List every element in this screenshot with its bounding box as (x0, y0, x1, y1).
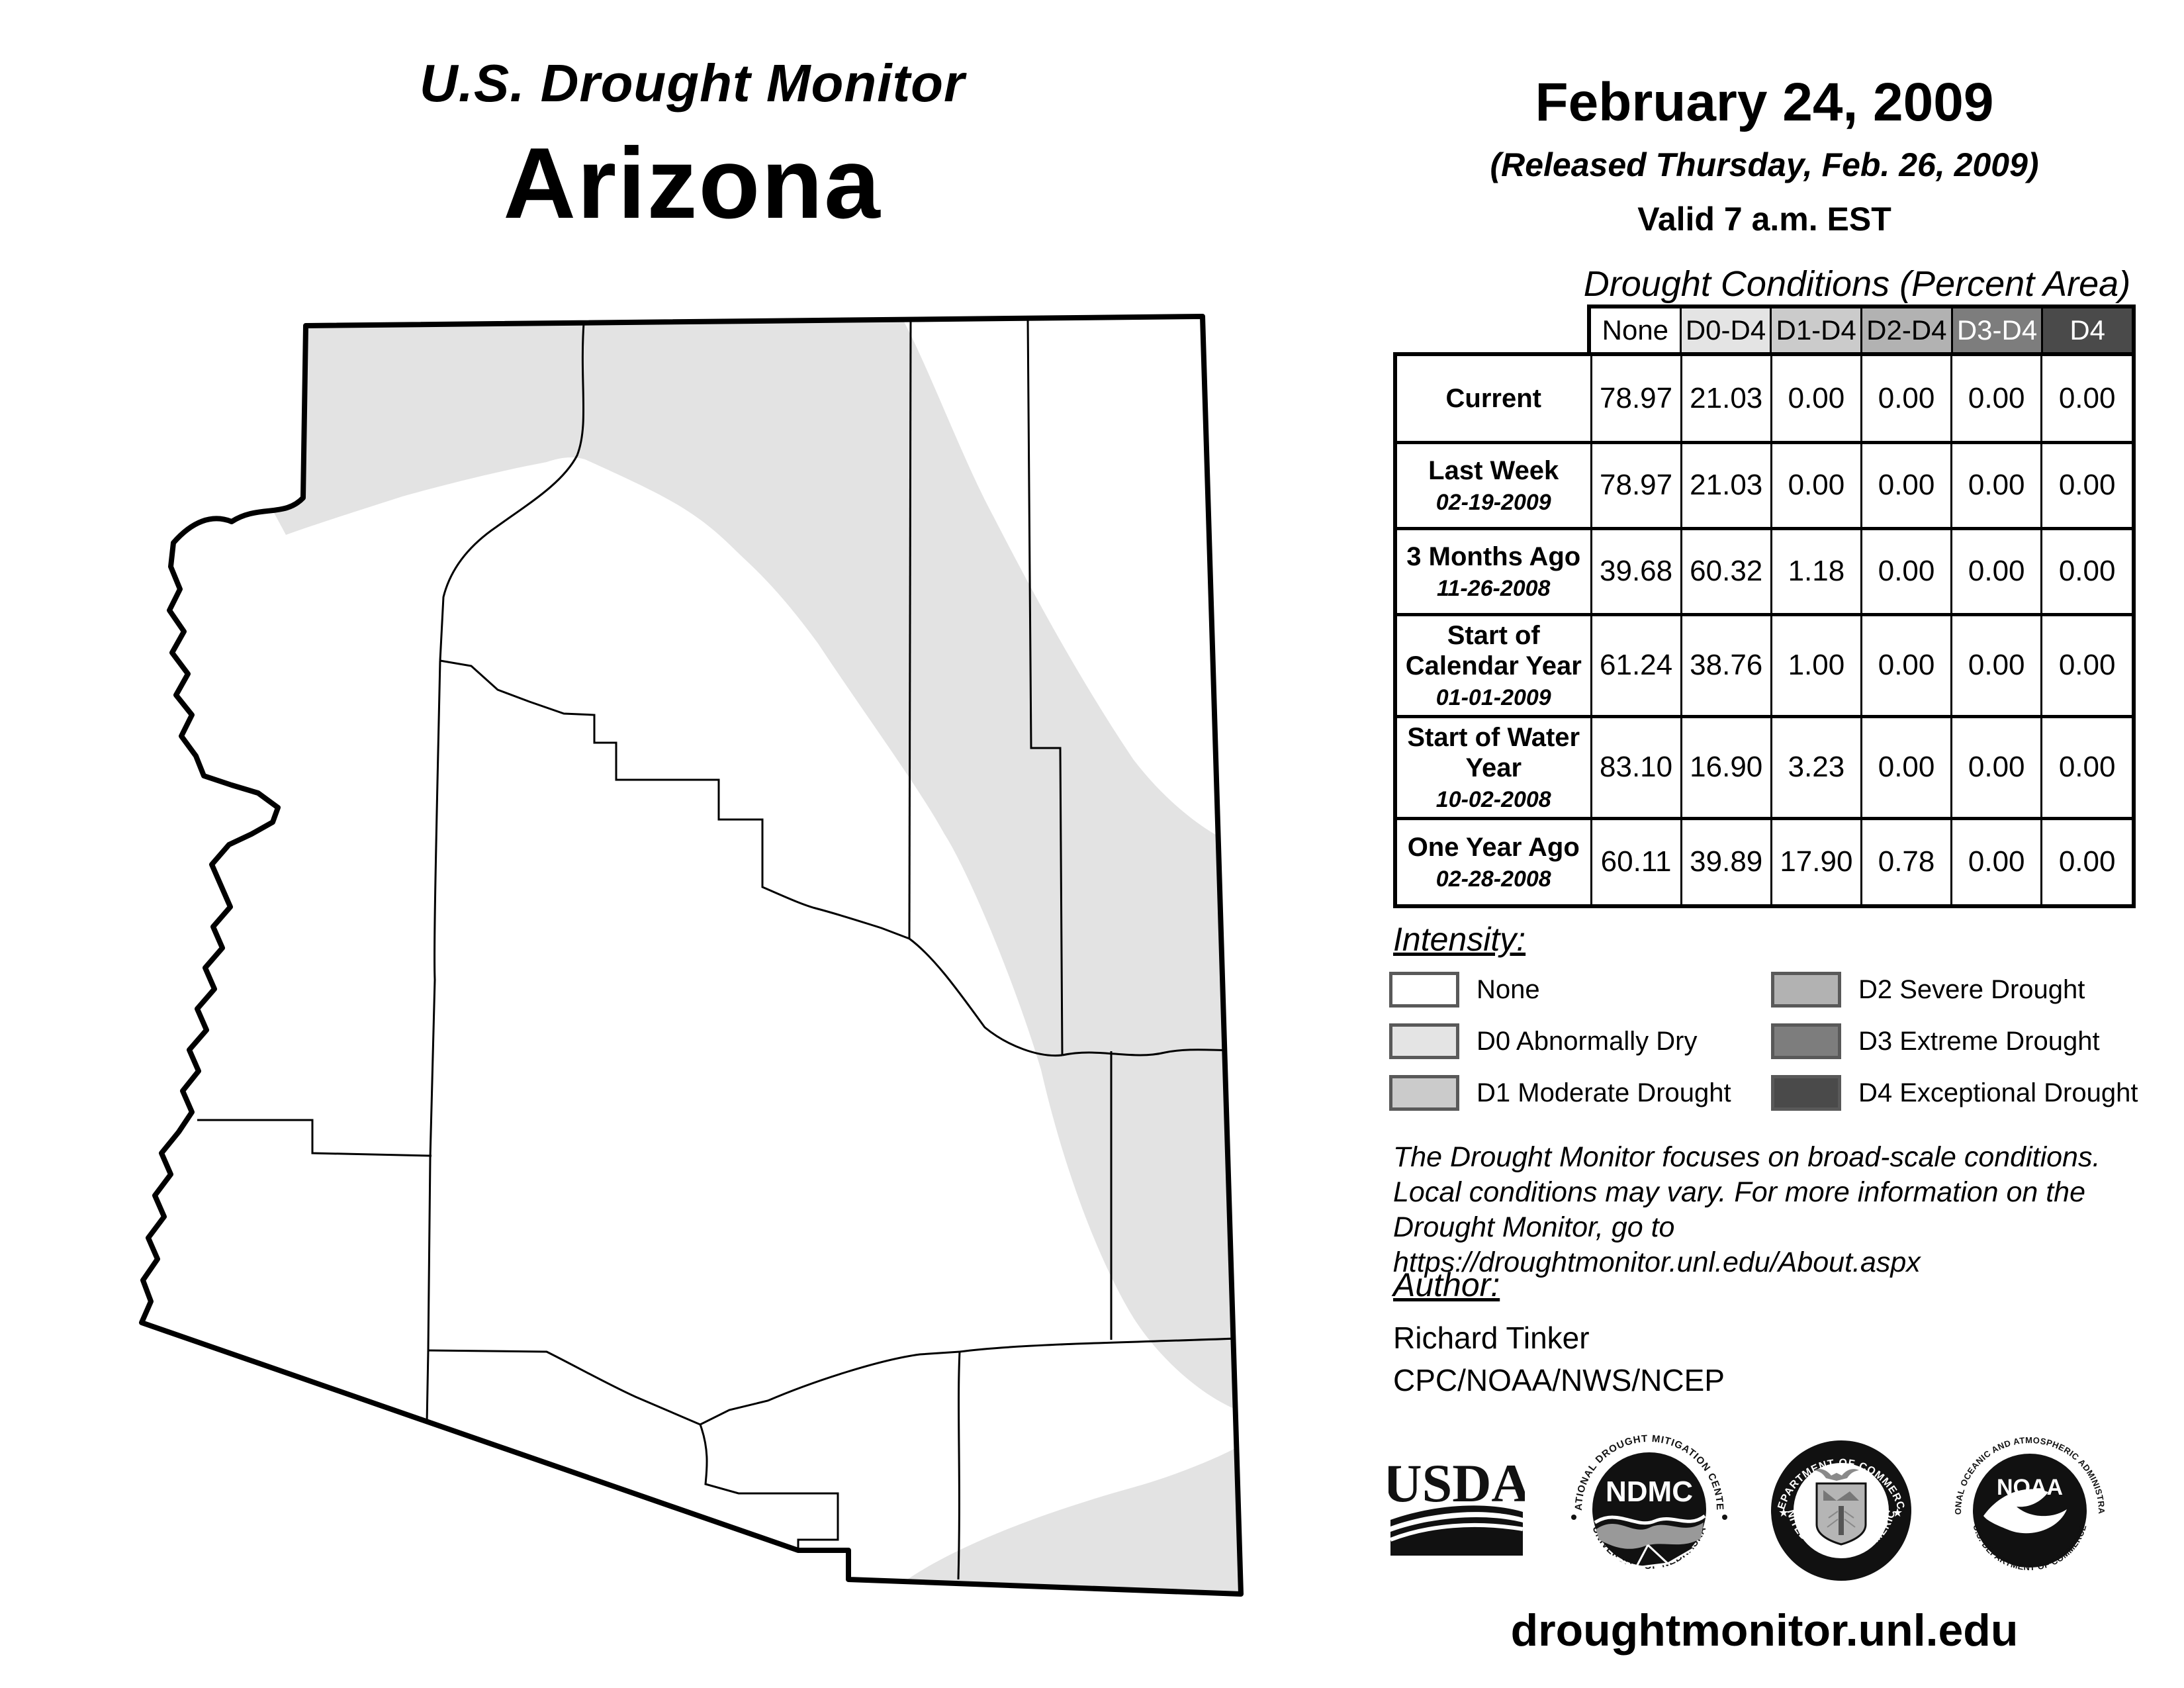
cell-value: 0.00 (1771, 442, 1861, 528)
state-name-title: Arizona (232, 126, 1153, 242)
arizona-drought-map (99, 285, 1264, 1655)
cell-value: 21.03 (1681, 356, 1771, 442)
legend-label: None (1477, 975, 1540, 1005)
released-date: (Released Thursday, Feb. 26, 2009) (1393, 146, 2136, 184)
legend-item-d3: D3 Extreme Drought (1771, 1023, 2100, 1059)
legend-item-d4: D4 Exceptional Drought (1771, 1075, 2138, 1111)
row-label: Current (1404, 383, 1584, 414)
table-row: One Year Ago02-28-2008 60.11 39.89 17.90… (1397, 818, 2132, 904)
row-date: 11-26-2008 (1404, 576, 1584, 602)
author-name: Richard Tinker (1393, 1320, 1590, 1356)
seal-star-right: ★ (1892, 1506, 1903, 1519)
cell-value: 0.00 (2042, 528, 2132, 614)
usda-logo-icon: USDA (1388, 1456, 1525, 1557)
cell-value: 61.24 (1591, 614, 1681, 716)
table-row: Last Week02-19-2009 78.97 21.03 0.00 0.0… (1397, 442, 2132, 528)
column-header-d2d4: D2-D4 (1860, 308, 1951, 352)
legend-swatch-d4 (1771, 1075, 1841, 1111)
table-row: 3 Months Ago11-26-2008 39.68 60.32 1.18 … (1397, 528, 2132, 614)
cell-value: 0.00 (1861, 716, 1951, 818)
legend-item-d2: D2 Severe Drought (1771, 972, 2085, 1008)
author-heading: Author: (1393, 1266, 1500, 1304)
cell-value: 60.11 (1591, 818, 1681, 904)
cell-value: 38.76 (1681, 614, 1771, 716)
cell-value: 39.68 (1591, 528, 1681, 614)
legend-swatch-d1 (1389, 1075, 1459, 1111)
cell-value: 83.10 (1591, 716, 1681, 818)
legend-label: D4 Exceptional Drought (1858, 1078, 2138, 1108)
column-header-d3d4: D3-D4 (1951, 308, 2042, 352)
cell-value: 0.00 (1952, 716, 2042, 818)
column-header-d4: D4 (2041, 308, 2132, 352)
legend-label: D1 Moderate Drought (1477, 1078, 1731, 1108)
author-organization: CPC/NOAA/NWS/NCEP (1393, 1362, 1725, 1398)
cell-value: 0.00 (1861, 356, 1951, 442)
cell-value: 0.00 (1952, 818, 2042, 904)
legend-swatch-d0 (1389, 1023, 1459, 1059)
legend-swatch-d3 (1771, 1023, 1841, 1059)
legend-item-none: None (1389, 972, 1540, 1008)
row-label: 3 Months Ago (1404, 541, 1584, 572)
cell-value: 0.00 (2042, 442, 2132, 528)
table-title: Drought Conditions (Percent Area) (1393, 263, 2136, 305)
cell-value: 78.97 (1591, 356, 1681, 442)
cell-value: 0.00 (1861, 442, 1951, 528)
row-label: Start of Water Year (1404, 722, 1584, 783)
column-header-none: None (1591, 308, 1680, 352)
map-date: February 24, 2009 (1393, 71, 2136, 134)
drought-conditions-table: Current 78.97 21.03 0.00 0.00 0.00 0.00 … (1393, 352, 2136, 908)
cell-value: 0.78 (1861, 818, 1951, 904)
cell-value: 3.23 (1771, 716, 1861, 818)
cell-value: 0.00 (1771, 356, 1861, 442)
cell-value: 0.00 (1861, 528, 1951, 614)
cell-value: 0.00 (1952, 356, 2042, 442)
ndmc-logo-icon: NATIONAL DROUGHT MITIGATION CENTER UNIVE… (1570, 1429, 1729, 1587)
cell-value: 0.00 (2042, 356, 2132, 442)
page-title: U.S. Drought Monitor (232, 53, 1153, 114)
footer-url: droughtmonitor.unl.edu (1393, 1605, 2136, 1656)
commerce-seal-icon: DEPARTMENT OF COMMERCE UNITED STATES OF … (1765, 1434, 1917, 1587)
legend-title: Intensity: (1393, 920, 1525, 959)
row-date: 02-28-2008 (1404, 867, 1584, 892)
row-label: Last Week (1404, 455, 1584, 486)
drought-monitor-page: { "header": { "title": "U.S. Drought Mon… (0, 0, 2184, 1688)
row-label: One Year Ago (1404, 832, 1584, 863)
usda-wordmark: USDA (1388, 1456, 1525, 1513)
title-block: U.S. Drought Monitor Arizona (232, 53, 1153, 242)
disclaimer-text: The Drought Monitor focuses on broad-sca… (1393, 1140, 2184, 1280)
valid-time: Valid 7 a.m. EST (1393, 200, 2136, 238)
cell-value: 0.00 (1861, 614, 1951, 716)
table-column-headers: None D0-D4 D1-D4 D2-D4 D3-D4 D4 (1587, 305, 2136, 356)
cell-value: 0.00 (1952, 442, 2042, 528)
row-label: Start of Calendar Year (1404, 620, 1584, 681)
cell-value: 21.03 (1681, 442, 1771, 528)
table-row: Start of Water Year10-02-2008 83.10 16.9… (1397, 716, 2132, 818)
cell-value: 0.00 (1952, 614, 2042, 716)
cell-value: 1.00 (1771, 614, 1861, 716)
legend-swatch-d2 (1771, 972, 1841, 1008)
disclaimer-line: Drought Monitor, go to https://droughtmo… (1393, 1210, 2184, 1280)
row-date: 10-02-2008 (1404, 787, 1584, 813)
cell-value: 0.00 (1952, 528, 2042, 614)
cell-value: 0.00 (2042, 614, 2132, 716)
legend-label: D2 Severe Drought (1858, 975, 2085, 1005)
row-date: 02-19-2009 (1404, 490, 1584, 516)
disclaimer-line: The Drought Monitor focuses on broad-sca… (1393, 1140, 2184, 1175)
table-row: Current 78.97 21.03 0.00 0.00 0.00 0.00 (1397, 356, 2132, 442)
cell-value: 17.90 (1771, 818, 1861, 904)
cell-value: 16.90 (1681, 716, 1771, 818)
legend-item-d0: D0 Abnormally Dry (1389, 1023, 1697, 1059)
column-header-d1d4: D1-D4 (1770, 308, 1860, 352)
cell-value: 60.32 (1681, 528, 1771, 614)
cell-value: 1.18 (1771, 528, 1861, 614)
noaa-logo-icon: NATIONAL OCEANIC AND ATMOSPHERIC ADMINIS… (1950, 1429, 2109, 1587)
disclaimer-line: Local conditions may vary. For more info… (1393, 1175, 2184, 1210)
legend-label: D0 Abnormally Dry (1477, 1027, 1697, 1056)
ndmc-wordmark: NDMC (1606, 1476, 1693, 1508)
noaa-wordmark: NOAA (1997, 1475, 2063, 1500)
column-header-d0d4: D0-D4 (1680, 308, 1770, 352)
row-date: 01-01-2009 (1404, 685, 1584, 711)
table-row: Start of Calendar Year01-01-2009 61.24 3… (1397, 614, 2132, 716)
seal-star-left: ★ (1778, 1506, 1789, 1519)
legend-label: D3 Extreme Drought (1858, 1027, 2100, 1056)
cell-value: 0.00 (2042, 818, 2132, 904)
legend-item-d1: D1 Moderate Drought (1389, 1075, 1731, 1111)
cell-value: 0.00 (2042, 716, 2132, 818)
legend-swatch-none (1389, 972, 1459, 1008)
cell-value: 78.97 (1591, 442, 1681, 528)
cell-value: 39.89 (1681, 818, 1771, 904)
date-block: February 24, 2009 (Released Thursday, Fe… (1393, 71, 2136, 238)
